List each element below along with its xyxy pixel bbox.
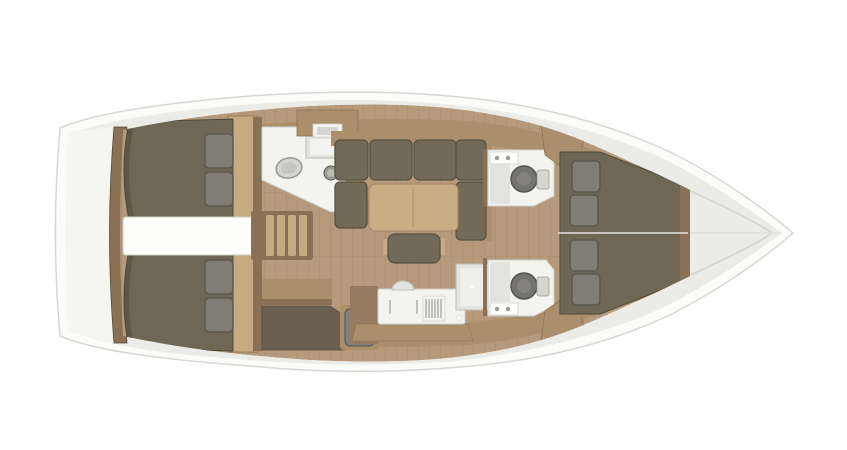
head-door-jamb: [483, 258, 487, 316]
toilet-icon: [511, 166, 549, 192]
pillow: [572, 274, 600, 305]
shower-tray-inner: [310, 139, 334, 155]
sofa-cushion: [370, 140, 412, 180]
sofa-cushion: [456, 140, 486, 180]
stove-icon: [423, 296, 445, 321]
head-shower-zone: [490, 164, 510, 204]
sofa-arm-cushion: [335, 182, 367, 228]
boat-floor-plan-canvas: [0, 0, 847, 450]
galley: [350, 281, 473, 344]
toilet-tank: [537, 277, 549, 296]
head-door-jamb: [483, 149, 487, 207]
sofa-arm-cushion: [456, 182, 486, 240]
salon-bench: [383, 234, 445, 263]
mid-head-starboard: [483, 258, 554, 316]
step-rung: [266, 215, 274, 256]
step-rung: [277, 215, 285, 256]
stern-platform: [65, 127, 112, 343]
head-shower-zone: [490, 262, 510, 302]
engine-compartment: [123, 217, 255, 255]
pillow: [570, 240, 598, 271]
galley-lower-cabinet: [352, 324, 473, 341]
nav-desk-edge: [262, 299, 332, 305]
step-rung: [299, 215, 307, 256]
step-rung: [288, 215, 296, 256]
galley-counter: [378, 289, 465, 324]
pillow: [572, 161, 600, 192]
counter-knob: [457, 316, 462, 321]
pillow: [205, 298, 233, 332]
pillow: [205, 260, 233, 294]
companionway-frame: [251, 211, 262, 260]
sofa-cushion: [414, 140, 456, 180]
pillow: [205, 134, 233, 168]
mid-head-port: [483, 149, 554, 207]
boat-floor-plan: [0, 0, 847, 450]
salon-table: [369, 184, 458, 231]
sofa-cushion: [335, 140, 368, 180]
toilet-icon: [511, 273, 549, 299]
pillow: [205, 172, 233, 206]
nav-desk: [262, 279, 332, 301]
pillow: [570, 195, 598, 226]
shower-drain: [470, 285, 474, 289]
sink-icon: [490, 152, 518, 164]
companionway-steps-icon: [261, 211, 313, 260]
nav-seat-back: [262, 306, 345, 350]
toilet-tank: [537, 170, 549, 189]
sink-icon: [490, 303, 518, 315]
